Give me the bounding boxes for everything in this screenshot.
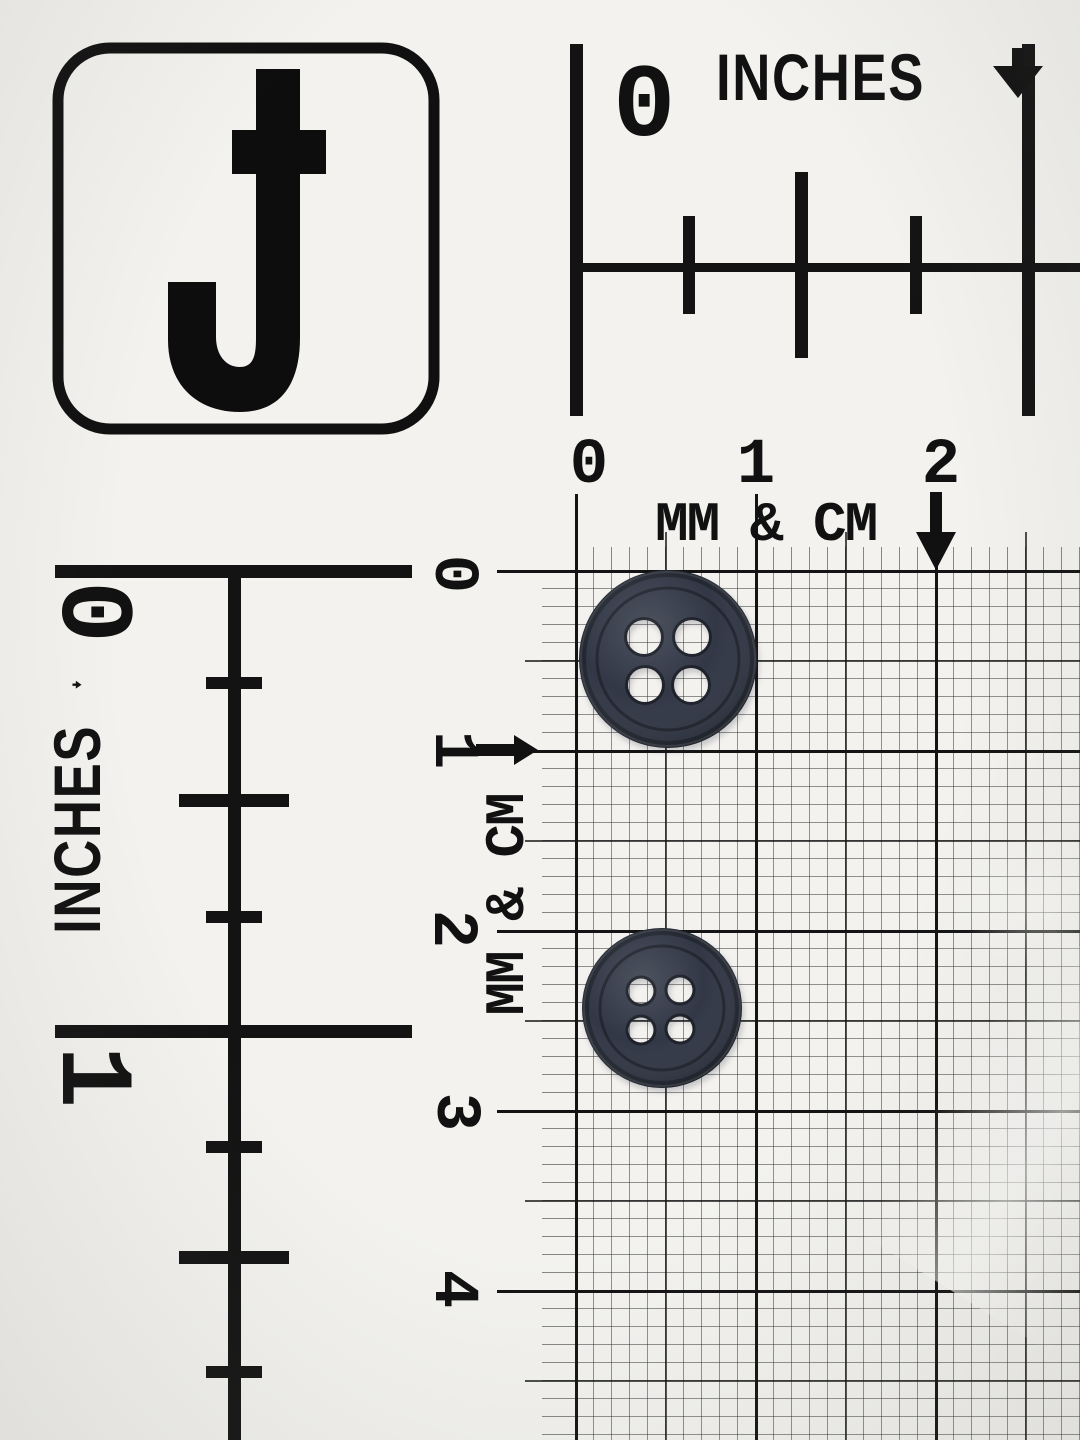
metric-top-label-1: 1 [726, 434, 786, 494]
left-ruler-half-tick [179, 794, 289, 807]
top-ruler-baseline [570, 263, 1080, 272]
left-ruler-spine [228, 570, 241, 1440]
metric-left-label-4: 4 [417, 1254, 487, 1324]
left-ruler-title-text: INCHES [44, 725, 110, 934]
down-arrow-icon [989, 48, 1047, 98]
left-ruler-half-tick-2 [179, 1251, 289, 1264]
scale-card-photo: 0 INCHES 0 1 INCHES 0 1 2 MM & CM 0 [0, 0, 1080, 1440]
metric-top-title: MM & CM [655, 497, 876, 553]
left-ruler-quarter-tick-2 [206, 1141, 262, 1153]
metric-left-label-0: 0 [417, 539, 487, 609]
top-ruler-zero-line [570, 44, 583, 416]
button-2 [577, 923, 747, 1093]
left-ruler-quarter-tick [206, 677, 262, 689]
metric-left-right-arrow-icon [476, 733, 538, 767]
metric-top-down-arrow-icon [914, 492, 958, 570]
metric-top-label-2: 2 [911, 434, 971, 494]
left-ruler-title: INCHES [49, 680, 105, 960]
top-ruler-half-tick [795, 172, 808, 358]
metric-top-label-0: 0 [559, 434, 619, 494]
left-ruler-zero-label: 0 [35, 557, 145, 667]
left-ruler-one-label: 1 [35, 1022, 145, 1132]
left-ruler-three-quarter-tick [206, 911, 262, 923]
top-ruler-title-text: INCHES [716, 44, 925, 110]
top-ruler-title: INCHES [716, 44, 1047, 110]
left-ruler-quarter-tick-3 [206, 1366, 262, 1378]
top-ruler-zero-label: 0 [613, 56, 675, 160]
metric-left-title: MM & CM [480, 780, 536, 1030]
logo-letter-j [168, 69, 326, 412]
metric-left-label-3: 3 [419, 1077, 489, 1147]
top-ruler-three-quarter-tick [910, 216, 922, 314]
top-ruler-quarter-tick [683, 216, 695, 314]
j-logo [50, 40, 442, 437]
button-1 [573, 564, 763, 754]
down-arrow-icon [54, 680, 100, 689]
